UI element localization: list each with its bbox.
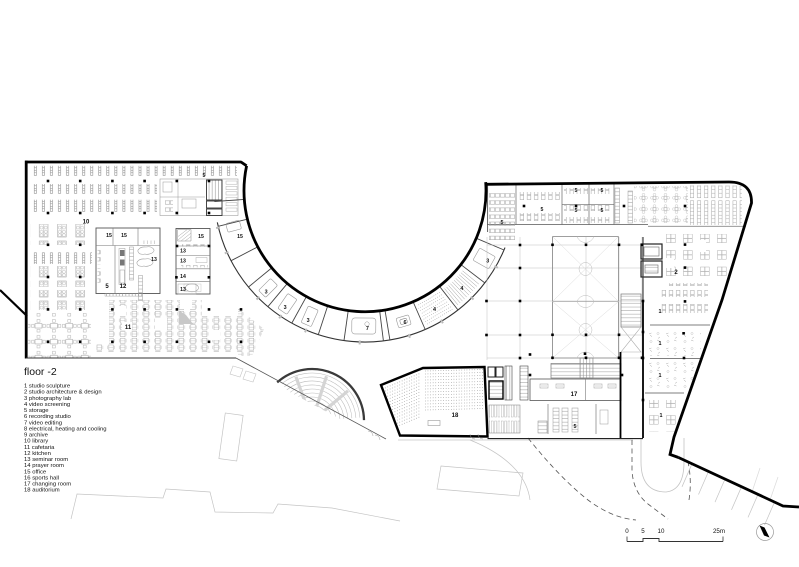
svg-text:5: 5 [575,188,578,194]
svg-text:1: 1 [659,373,662,379]
svg-text:10 library: 10 library [24,439,48,445]
svg-text:3: 3 [265,290,268,296]
svg-text:4 video screening: 4 video screening [24,402,70,408]
svg-text:17 changing room: 17 changing room [24,482,71,488]
svg-text:6: 6 [404,320,407,326]
svg-text:13: 13 [180,259,186,265]
svg-text:14: 14 [180,274,186,280]
svg-text:13 seminar room: 13 seminar room [24,457,68,463]
svg-text:17: 17 [571,392,578,398]
svg-text:7: 7 [366,326,369,332]
svg-text:10: 10 [83,220,90,226]
svg-text:7 video editing: 7 video editing [24,420,62,426]
svg-text:15: 15 [106,233,112,239]
svg-text:12: 12 [120,284,127,290]
svg-text:3: 3 [284,305,287,311]
svg-text:5: 5 [203,173,206,179]
svg-text:11 cafetaria: 11 cafetaria [24,445,55,451]
svg-text:0: 0 [625,528,629,535]
svg-text:15: 15 [198,234,204,240]
svg-text:5: 5 [601,188,604,194]
svg-text:5: 5 [601,208,604,214]
svg-text:15: 15 [237,234,243,240]
svg-text:9 archive: 9 archive [24,433,49,439]
svg-text:5: 5 [541,207,544,213]
svg-text:1: 1 [659,309,662,315]
svg-text:12 kitchen: 12 kitchen [24,451,51,457]
svg-text:floor -2: floor -2 [24,366,57,378]
svg-text:2 studio architecture & design: 2 studio architecture & design [24,390,102,396]
svg-text:1: 1 [659,341,662,347]
svg-text:15: 15 [121,233,127,239]
svg-text:5: 5 [641,528,645,535]
svg-text:5 storage: 5 storage [24,408,49,414]
svg-text:25m: 25m [713,528,725,535]
svg-text:1: 1 [660,413,663,419]
svg-text:14 prayer room: 14 prayer room [24,463,64,469]
svg-text:5: 5 [574,424,577,430]
svg-text:13: 13 [180,287,186,293]
svg-text:3: 3 [307,318,310,324]
svg-text:5: 5 [575,208,578,214]
svg-text:3: 3 [486,258,489,264]
svg-text:13: 13 [151,257,157,263]
svg-text:13: 13 [180,249,186,255]
svg-text:15 office: 15 office [24,469,47,475]
svg-text:8 electrical, heating and cool: 8 electrical, heating and cooling [24,426,107,432]
svg-text:18 auditorium: 18 auditorium [24,488,60,494]
svg-text:4: 4 [460,286,463,292]
svg-text:1 studio sculpture: 1 studio sculpture [24,384,71,390]
svg-text:5: 5 [501,220,504,226]
svg-text:4: 4 [433,307,436,313]
svg-text:10: 10 [658,528,665,535]
svg-text:18: 18 [452,413,459,419]
svg-text:6 recording studio: 6 recording studio [24,414,72,420]
svg-text:3 photography lab: 3 photography lab [24,396,72,402]
svg-text:16 sports hall: 16 sports hall [24,475,59,481]
svg-text:11: 11 [125,325,132,331]
